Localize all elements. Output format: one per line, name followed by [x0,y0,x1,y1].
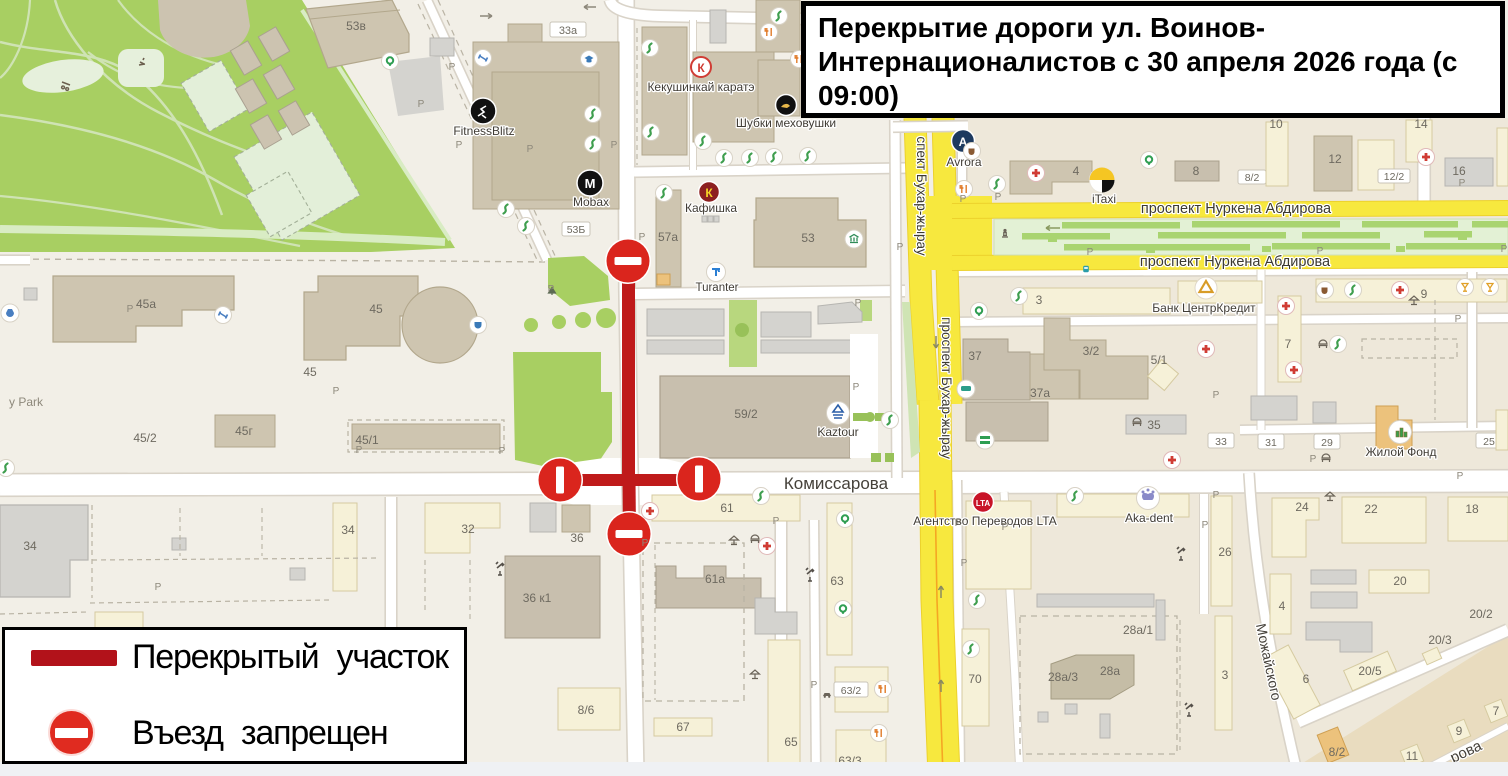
svg-text:P: P [1501,244,1508,255]
svg-text:7: 7 [1493,704,1500,718]
svg-text:67: 67 [676,720,690,734]
svg-text:8/2: 8/2 [1329,745,1346,759]
svg-text:70: 70 [968,672,982,686]
svg-text:8/6: 8/6 [578,703,595,717]
svg-text:FitnessBlitz: FitnessBlitz [453,124,514,138]
svg-text:22: 22 [1364,502,1378,516]
svg-text:Kaztour: Kaztour [817,425,858,439]
svg-text:Шубки меховушки: Шубки меховушки [736,116,836,130]
svg-text:P: P [155,582,162,593]
svg-text:16: 16 [1452,164,1466,178]
svg-text:34: 34 [23,539,37,553]
svg-text:45/1: 45/1 [355,433,379,447]
svg-text:6: 6 [1303,672,1310,686]
svg-text:P: P [1213,490,1220,501]
svg-text:32: 32 [461,522,475,536]
svg-text:P: P [642,538,649,549]
svg-text:P: P [995,192,1002,203]
svg-text:P: P [773,516,780,527]
svg-text:Комиссарова: Комиссарова [784,474,889,493]
svg-text:Turanter: Turanter [695,282,738,294]
svg-text:45a: 45a [136,297,156,311]
svg-text:53в: 53в [346,19,366,33]
svg-text:28a/1: 28a/1 [1123,623,1153,637]
svg-text:45: 45 [303,365,317,379]
svg-text:P: P [955,518,962,529]
svg-text:8: 8 [1193,164,1200,178]
svg-text:37a: 37a [1030,386,1050,400]
svg-text:проспект Нуркена Абдирова: проспект Нуркена Абдирова [1140,254,1331,270]
svg-text:45/2: 45/2 [133,431,157,445]
svg-text:спект Бухар-жырау: спект Бухар-жырау [914,136,929,256]
svg-text:63: 63 [830,574,844,588]
svg-text:P: P [1002,522,1009,533]
svg-text:Aka-dent: Aka-dent [1125,511,1174,525]
svg-text:P: P [961,558,968,569]
svg-text:P: P [1457,471,1464,482]
svg-text:36: 36 [570,531,584,545]
svg-text:P: P [499,446,506,457]
svg-text:Кафишка: Кафишка [685,201,737,215]
svg-text:P: P [1213,390,1220,401]
svg-text:10: 10 [1269,117,1283,131]
svg-text:P: P [1459,178,1466,189]
svg-text:M: M [585,176,596,191]
svg-text:P: P [1310,454,1317,465]
svg-text:45: 45 [369,302,383,316]
svg-text:P: P [449,62,456,73]
svg-text:24: 24 [1295,500,1309,514]
svg-text:34: 34 [341,523,355,537]
svg-text:28a/3: 28a/3 [1048,670,1078,684]
svg-text:P: P [527,144,534,155]
svg-text:26: 26 [1218,545,1232,559]
svg-text:63/2: 63/2 [841,685,862,697]
svg-text:P: P [333,386,340,397]
svg-text:65: 65 [784,735,798,749]
svg-text:20/5: 20/5 [1358,664,1382,678]
svg-text:P: P [1455,314,1462,325]
svg-text:P: P [897,242,904,253]
svg-text:3: 3 [1222,668,1229,682]
svg-text:P: P [1202,520,1209,531]
svg-text:29: 29 [1321,437,1333,449]
svg-text:25: 25 [1483,436,1495,448]
svg-text:33: 33 [1215,436,1227,448]
svg-text:9: 9 [1421,287,1428,301]
svg-text:31: 31 [1265,437,1277,449]
svg-text:Mobax: Mobax [573,195,609,209]
svg-text:P: P [853,382,860,393]
svg-text:61a: 61a [705,572,725,586]
svg-text:5/1: 5/1 [1151,353,1168,367]
svg-text:28a: 28a [1100,664,1120,678]
svg-text:12: 12 [1328,152,1342,166]
svg-text:14: 14 [1414,117,1428,131]
svg-text:20: 20 [1393,574,1407,588]
svg-text:К: К [705,186,713,200]
svg-text:3: 3 [1036,293,1043,307]
svg-text:Агентство Переводов LTA: Агентство Переводов LTA [913,514,1056,528]
svg-text:53Б: 53Б [567,224,586,236]
svg-text:iTaxi: iTaxi [1092,192,1116,206]
svg-text:P: P [1087,247,1094,258]
svg-text:Жилой Фонд: Жилой Фонд [1365,445,1436,459]
svg-text:Кекушинкай каратэ: Кекушинкай каратэ [647,80,754,94]
svg-text:проспект Бухар-жырау: проспект Бухар-жырау [939,317,954,459]
svg-text:53: 53 [801,231,815,245]
svg-text:P: P [418,99,425,110]
svg-text:P: P [548,284,555,295]
svg-text:y Park: y Park [9,395,44,409]
svg-text:Банк ЦентрКредит: Банк ЦентрКредит [1152,301,1256,315]
svg-text:35: 35 [1147,418,1161,432]
svg-text:P: P [127,304,134,315]
svg-text:59/2: 59/2 [734,407,758,421]
svg-text:33a: 33a [559,25,578,37]
svg-text:61: 61 [720,501,734,515]
svg-text:P: P [811,680,818,691]
svg-text:20/3: 20/3 [1428,633,1452,647]
svg-text:11: 11 [1406,749,1419,763]
svg-text:7: 7 [1285,337,1292,351]
svg-text:9: 9 [1456,724,1463,738]
svg-text:проспект Нуркена Абдирова: проспект Нуркена Абдирова [1141,201,1332,217]
svg-text:20/2: 20/2 [1469,607,1493,621]
svg-text:P: P [855,298,862,309]
svg-text:P: P [960,194,967,205]
svg-text:36 к1: 36 к1 [523,591,552,605]
svg-text:3/2: 3/2 [1083,344,1100,358]
svg-text:45г: 45г [235,424,253,438]
svg-text:8/2: 8/2 [1245,172,1260,184]
svg-text:57a: 57a [658,230,678,244]
svg-text:4: 4 [1073,164,1080,178]
svg-text:P: P [611,140,618,151]
svg-text:18: 18 [1465,502,1479,516]
svg-text:К: К [697,61,705,75]
svg-text:P: P [639,232,646,243]
svg-text:4: 4 [1279,599,1286,613]
svg-text:LTA: LTA [976,499,991,508]
svg-text:P: P [456,140,463,151]
svg-text:12/2: 12/2 [1384,171,1405,183]
svg-text:37: 37 [968,349,982,363]
